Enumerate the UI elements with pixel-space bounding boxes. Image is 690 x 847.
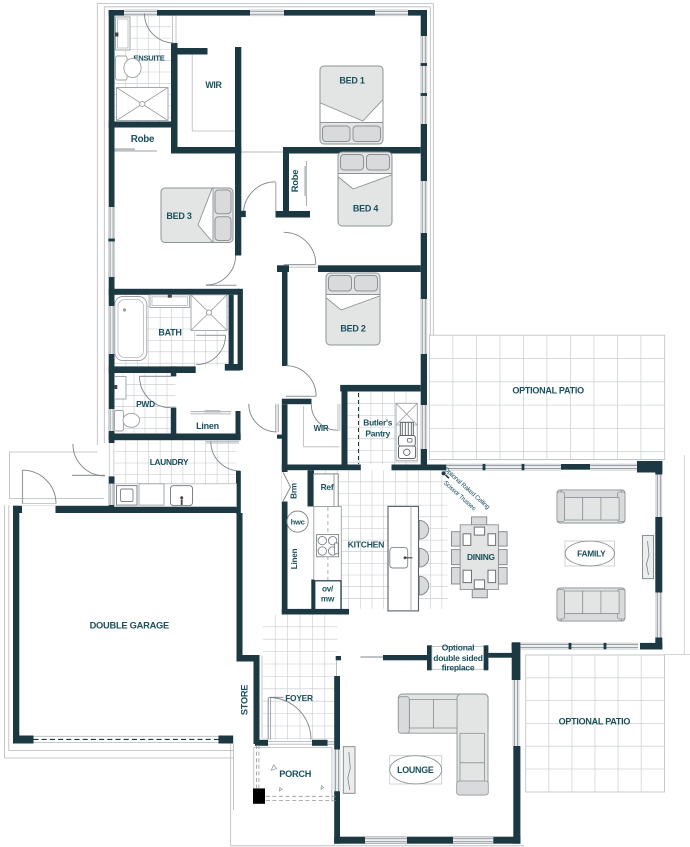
svg-text:BED 2: BED 2: [340, 324, 366, 334]
svg-text:BATH: BATH: [158, 328, 181, 338]
svg-text:Linen: Linen: [196, 421, 219, 431]
svg-text:FAMILY: FAMILY: [577, 549, 606, 559]
svg-text:OPTIONAL PATIO: OPTIONAL PATIO: [559, 716, 631, 726]
svg-text:Butler's: Butler's: [363, 418, 392, 428]
svg-text:DINING: DINING: [467, 552, 495, 562]
svg-text:hwc: hwc: [291, 517, 305, 526]
svg-text:fireplace: fireplace: [442, 663, 475, 673]
svg-text:LAUNDRY: LAUNDRY: [150, 457, 189, 467]
svg-text:BED 3: BED 3: [166, 211, 192, 221]
svg-text:PWD: PWD: [136, 399, 155, 409]
svg-text:Brm: Brm: [290, 483, 299, 499]
svg-text:WIR: WIR: [314, 424, 329, 433]
svg-text:FOYER: FOYER: [285, 693, 313, 703]
svg-text:Optional: Optional: [442, 642, 474, 652]
svg-text:WIR: WIR: [205, 80, 222, 90]
svg-text:STORE: STORE: [239, 685, 249, 715]
svg-text:double sided: double sided: [433, 653, 482, 663]
svg-text:BED 1: BED 1: [339, 76, 365, 86]
svg-text:Ref: Ref: [321, 482, 334, 492]
svg-text:Robe: Robe: [131, 134, 155, 145]
svg-text:Linen: Linen: [290, 548, 299, 569]
svg-text:BED 4: BED 4: [353, 204, 379, 214]
svg-text:OPTIONAL PATIO: OPTIONAL PATIO: [512, 385, 584, 395]
svg-text:KITCHEN: KITCHEN: [348, 540, 384, 550]
svg-text:DOUBLE GARAGE: DOUBLE GARAGE: [90, 621, 169, 631]
svg-text:ov/: ov/: [322, 585, 334, 594]
svg-text:mw: mw: [321, 595, 335, 604]
svg-text:LOUNGE: LOUNGE: [397, 765, 434, 775]
svg-text:Pantry: Pantry: [365, 429, 390, 439]
svg-text:Robe: Robe: [289, 170, 300, 192]
svg-text:PORCH: PORCH: [279, 769, 312, 779]
